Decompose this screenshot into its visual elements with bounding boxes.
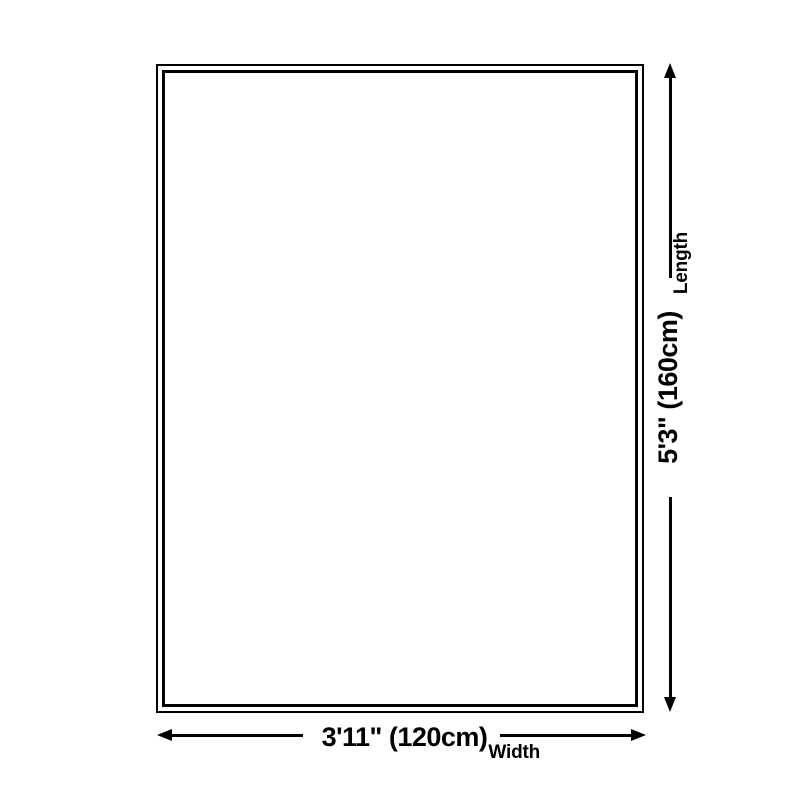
width-value: 3'11" (120cm) xyxy=(322,724,488,751)
arrow-down-icon xyxy=(664,697,676,712)
arrow-left-icon xyxy=(157,729,172,741)
length-dimension: 5'3" (160cm) Length xyxy=(656,63,684,712)
length-dimension-line-upper: Length xyxy=(669,78,672,278)
arrow-up-icon xyxy=(664,63,676,78)
width-dimension-line-right: Width xyxy=(500,734,631,737)
length-value: 5'3" (160cm) xyxy=(655,311,682,464)
length-axis-label: Length xyxy=(672,232,691,294)
size-diagram: 3'11" (120cm) Width 5'3" (160cm) Length xyxy=(0,0,800,800)
width-axis-label: Width xyxy=(488,743,540,762)
arrow-right-icon xyxy=(631,729,646,741)
product-outline xyxy=(156,64,644,713)
length-dimension-line-lower xyxy=(669,497,672,697)
width-dimension-line-left xyxy=(172,734,303,737)
width-dimension: 3'11" (120cm) Width xyxy=(157,721,646,749)
product-outline-inner xyxy=(162,70,638,707)
